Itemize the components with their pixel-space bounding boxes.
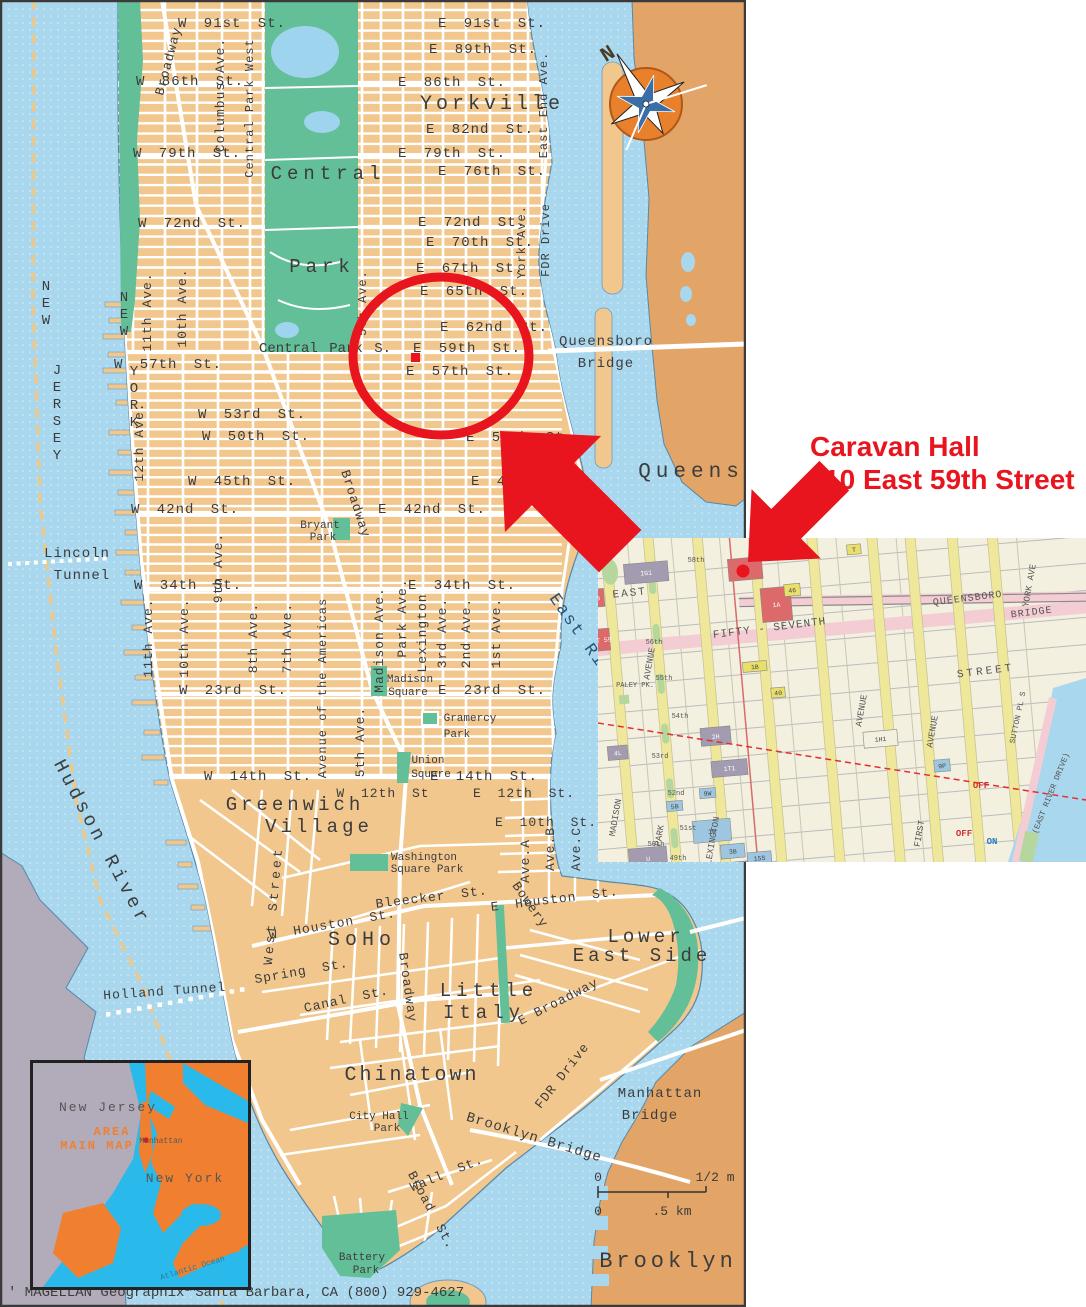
detail-block-label: 1A <box>772 602 780 610</box>
map-label: Manhattan <box>618 1086 703 1102</box>
detail-label: 56th <box>646 639 663 647</box>
detail-block-label: 4L <box>614 750 622 758</box>
map-label: Park <box>353 1265 380 1277</box>
map-label: W 50th St. <box>202 429 310 445</box>
map-label: E 23rd St. <box>438 683 546 699</box>
map-label: E 72nd St. <box>418 215 526 231</box>
map-label: YORK <box>130 364 139 431</box>
locator-label: New Jersey <box>59 1100 157 1115</box>
map-label: 10th Ave. <box>175 268 190 347</box>
map-label: Central <box>271 163 386 185</box>
map-label: Italy <box>443 1002 525 1024</box>
map-label: Tunnel <box>54 568 110 584</box>
map-label: E 65th St. <box>420 284 528 300</box>
map-label: Park Ave. <box>395 578 410 657</box>
detail-label: 53rd <box>652 753 669 761</box>
detail-block-label: 5B <box>670 803 678 811</box>
map-label: E 34th St. <box>408 578 516 594</box>
paley-park-square <box>619 695 630 705</box>
map-label: Village <box>265 816 373 838</box>
map-label: Ave.B <box>543 827 558 871</box>
map-label: W 14th St. <box>204 769 312 785</box>
map-label: 11th Ave. <box>140 272 155 351</box>
map-label: Bridge <box>622 1108 678 1124</box>
map-label: 2nd Ave. <box>459 598 474 668</box>
map-label: Park <box>289 256 355 278</box>
map-label: Bridge <box>578 356 634 372</box>
map-screenshot: W 91st St.E 91st St.E 89th St.W 86th St.… <box>0 0 1086 1307</box>
detail-block-label: 9P <box>938 763 946 771</box>
detail-label: 52nd <box>668 790 685 798</box>
map-label: 0 <box>594 1170 602 1185</box>
map-label: 9th Ave. <box>211 533 226 603</box>
map-label: Lexington <box>415 593 430 672</box>
map-label: Bryant <box>300 520 340 532</box>
venue-name: Caravan Hall <box>810 430 1075 463</box>
detail-label: OFF <box>973 781 989 791</box>
map-label: East Side <box>573 945 712 967</box>
venue-annotation: Caravan Hall 110 East 59th Street <box>810 430 1075 496</box>
map-label: 1/2 m <box>695 1170 734 1185</box>
detail-label: 58th <box>688 557 705 565</box>
map-label: Central Park West <box>243 38 257 177</box>
locator-label: Manhattan <box>139 1137 182 1146</box>
detail-label: 50th <box>648 841 665 849</box>
detail-block-label: 40 <box>774 690 782 698</box>
map-label: 1st Ave. <box>489 598 504 668</box>
map-label: E 67th St. <box>416 261 524 277</box>
map-label: W 42nd St. <box>131 502 239 518</box>
detail-label: 49th <box>670 855 687 862</box>
map-label: York Ave. <box>515 205 529 279</box>
map-label: Square Park <box>391 864 464 876</box>
reservoir <box>271 26 339 78</box>
map-label: E 57th St. <box>406 364 514 380</box>
locator-inset: New JerseyAREAMAIN MAPManhattanNew YorkA… <box>30 1060 251 1290</box>
map-label: Park <box>444 729 471 741</box>
detail-block-label: U <box>646 856 651 862</box>
detail-block-label: 1T1 <box>723 765 735 773</box>
map-label: E 79th St. <box>398 146 506 162</box>
detail-label: 51st <box>680 825 697 833</box>
map-label: W 91st St. <box>178 16 286 32</box>
detail-block-label: 3B <box>729 848 737 856</box>
map-label: JERSEY <box>53 363 62 464</box>
map-label: W 45th St. <box>188 474 296 490</box>
detail-block-label: T <box>852 547 857 554</box>
detail-block-label: 9W <box>703 790 711 798</box>
map-label: Central Park S. <box>259 341 391 357</box>
map-label: Avenue of the Americas <box>316 598 330 778</box>
detail-block-label: 15S <box>753 855 765 862</box>
map-label: E 86th St. <box>398 75 506 91</box>
map-label: Battery <box>339 1252 386 1264</box>
locator-inset-map: New JerseyAREAMAIN MAPManhattanNew YorkA… <box>33 1063 248 1287</box>
map-label: E 12th St. <box>473 786 575 801</box>
map-label: Little <box>440 980 538 1002</box>
map-label: E 89th St. <box>429 42 537 58</box>
map-label: SoHo <box>328 929 396 952</box>
map-label: Madison <box>387 674 433 686</box>
locator-label: New York <box>146 1171 224 1186</box>
map-label: Brooklyn <box>599 1249 737 1274</box>
map-label: E 50th St. <box>466 430 574 446</box>
detail-label: ON <box>987 837 998 847</box>
map-label: Lincoln <box>44 546 110 562</box>
map-label: Union <box>411 755 444 767</box>
locator-label: MAIN MAP <box>60 1139 134 1153</box>
detail-label: OFF <box>956 829 972 839</box>
map-label: Gramercy <box>444 713 497 725</box>
map-label: Queensboro <box>559 334 653 350</box>
map-label: E 59th St. <box>413 341 521 357</box>
detail-block-label: 1H1 <box>874 736 886 744</box>
map-label: 8th Ave. <box>246 603 261 673</box>
detail-block-label: IG1 <box>640 570 652 578</box>
map-label: Madison Ave. <box>372 587 387 693</box>
street-detail-map: 461A2B1T 59IG11H12H1T1U4014L1W3B15S2W46T… <box>598 538 1086 862</box>
gramercy-park-shape <box>422 712 438 725</box>
detail-block-label: 46 <box>788 587 796 595</box>
map-label: E 45th St. <box>471 474 579 490</box>
map-label: Ave.C <box>569 827 584 871</box>
venue-address: 110 East 59th Street <box>810 463 1075 496</box>
map-label: Square <box>411 769 451 781</box>
map-label: Greenwich <box>226 794 365 816</box>
map-label: E 76th St. <box>438 164 546 180</box>
map-label: .5 km <box>652 1204 691 1219</box>
map-label: W 53rd St. <box>198 407 306 423</box>
map-label: 11th Ave. <box>141 598 156 677</box>
map-label: 10th Ave. <box>177 598 192 677</box>
map-label: Park <box>310 532 337 544</box>
map-label: Washington <box>391 852 457 864</box>
detail-block-label: 2H <box>712 733 720 741</box>
venue-location-dot <box>737 565 750 578</box>
map-label: Chinatown <box>344 1064 479 1087</box>
map-label: E 91st St. <box>438 16 546 32</box>
map-label: NEW <box>42 279 51 329</box>
map-label: 3rd Ave. <box>435 598 450 668</box>
map-label: Columbus Ave. <box>213 38 228 152</box>
locator-label: AREA <box>94 1125 131 1139</box>
detail-label: 55th <box>656 675 673 683</box>
map-label: 0 <box>594 1204 602 1219</box>
street-detail-inset: 461A2B1T 59IG11H12H1T1U4014L1W3B15S2W46T… <box>598 538 1086 862</box>
map-label: Yorkville <box>420 93 564 116</box>
map-label: FDR Drive <box>539 203 553 277</box>
map-label: E 42nd St. <box>378 502 486 518</box>
map-label: City Hall <box>349 1111 408 1123</box>
map-label: W 23rd St. <box>179 683 287 699</box>
map-label: Square <box>388 687 428 699</box>
map-label: E 82nd St. <box>426 122 534 138</box>
map-label: Queens <box>638 461 744 484</box>
map-label: NEW <box>120 290 129 340</box>
detail-label: 54th <box>672 713 689 721</box>
detail-block-label: 1B <box>751 664 759 672</box>
map-label: Park <box>374 1123 401 1135</box>
map-label: E 62nd St. <box>440 320 548 336</box>
map-label: W 72nd St. <box>138 216 246 232</box>
map-label: 5th Ave. <box>353 707 368 777</box>
washington-square-shape <box>350 854 388 871</box>
map-label: Ave.A <box>518 839 533 883</box>
map-label: 5th Ave. <box>356 270 370 336</box>
map-label: 7th Ave. <box>280 603 295 673</box>
detail-label: PALEY PK. <box>616 682 654 690</box>
